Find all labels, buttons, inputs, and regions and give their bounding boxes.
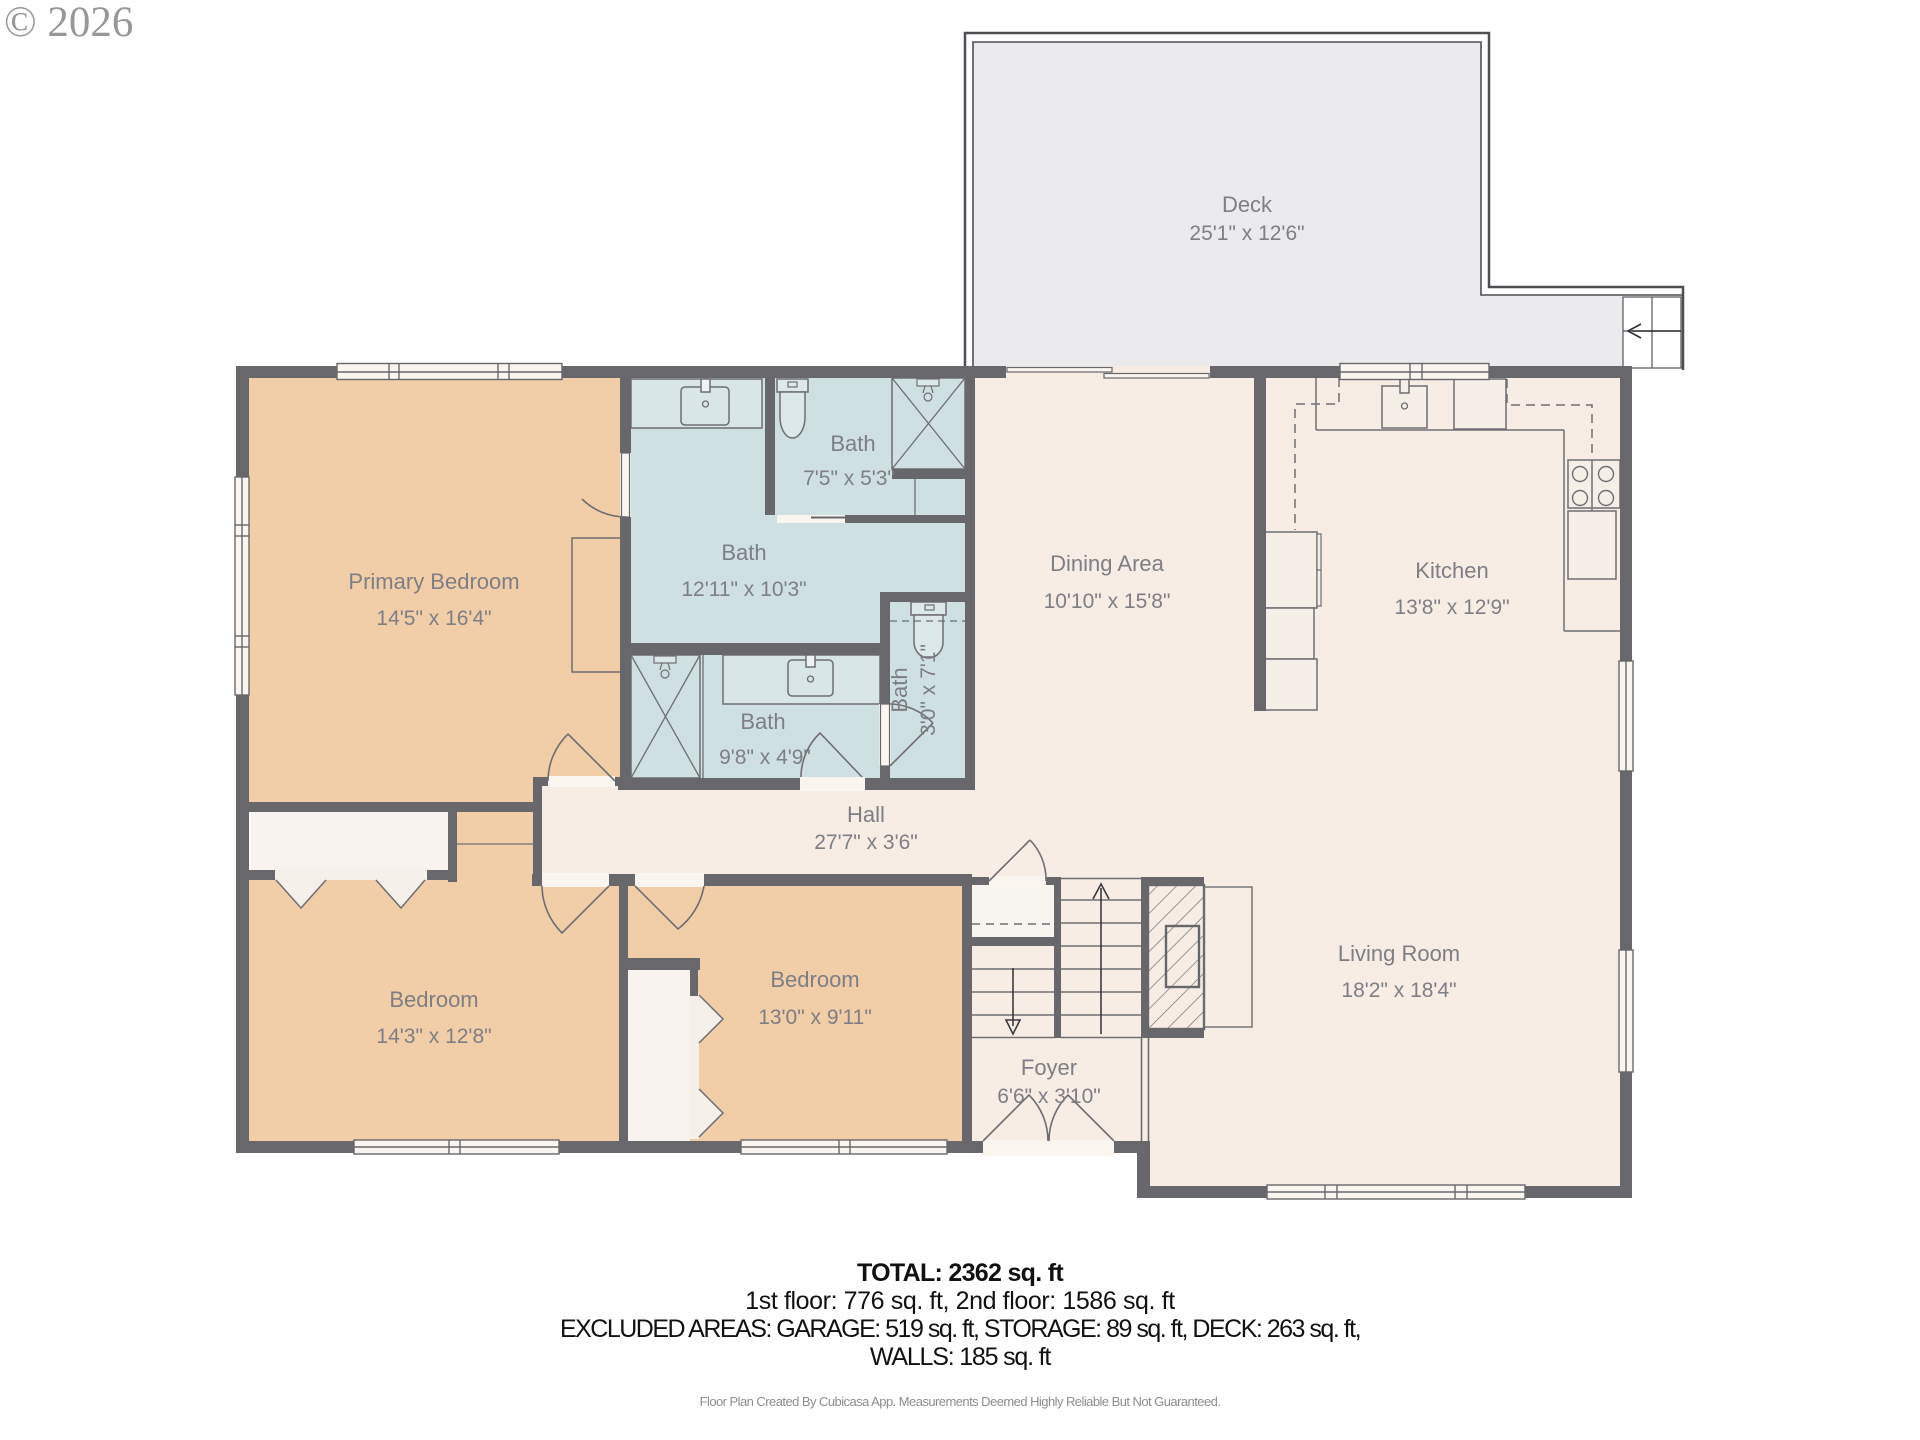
svg-text:Bedroom: Bedroom [770, 967, 859, 992]
svg-text:Bath: Bath [830, 431, 875, 456]
svg-text:14'3" x 12'8": 14'3" x 12'8" [376, 1025, 491, 1048]
svg-text:Primary Bedroom: Primary Bedroom [348, 569, 519, 594]
svg-text:Living Room: Living Room [1338, 941, 1460, 966]
svg-text:Bedroom: Bedroom [389, 987, 478, 1012]
svg-text:7'5" x 5'3": 7'5" x 5'3" [803, 467, 895, 490]
svg-text:13'0" x 9'11": 13'0" x 9'11" [758, 1006, 872, 1029]
svg-text:18'2" x 18'4": 18'2" x 18'4" [1341, 979, 1456, 1002]
svg-text:14'5" x 16'4": 14'5" x 16'4" [376, 607, 491, 630]
svg-text:Bath: Bath [887, 667, 912, 712]
svg-text:Foyer: Foyer [1021, 1055, 1077, 1080]
svg-text:12'11" x 10'3": 12'11" x 10'3" [681, 578, 806, 601]
svg-text:Bath: Bath [740, 709, 785, 734]
svg-text:3'0" x 7'1": 3'0" x 7'1" [917, 644, 940, 736]
svg-text:Hall: Hall [847, 802, 885, 827]
svg-text:Kitchen: Kitchen [1415, 558, 1488, 583]
svg-text:27'7" x 3'6": 27'7" x 3'6" [814, 831, 918, 854]
svg-text:Dining Area: Dining Area [1050, 551, 1165, 576]
svg-text:9'8" x 4'9": 9'8" x 4'9" [719, 746, 811, 769]
svg-text:25'1" x 12'6": 25'1" x 12'6" [1189, 222, 1304, 245]
svg-text:Bath: Bath [721, 540, 766, 565]
svg-text:13'8" x 12'9": 13'8" x 12'9" [1394, 596, 1509, 619]
svg-text:10'10" x 15'8": 10'10" x 15'8" [1044, 590, 1171, 613]
svg-text:Deck: Deck [1222, 192, 1273, 217]
svg-text:6'6" x 3'10": 6'6" x 3'10" [997, 1085, 1101, 1108]
